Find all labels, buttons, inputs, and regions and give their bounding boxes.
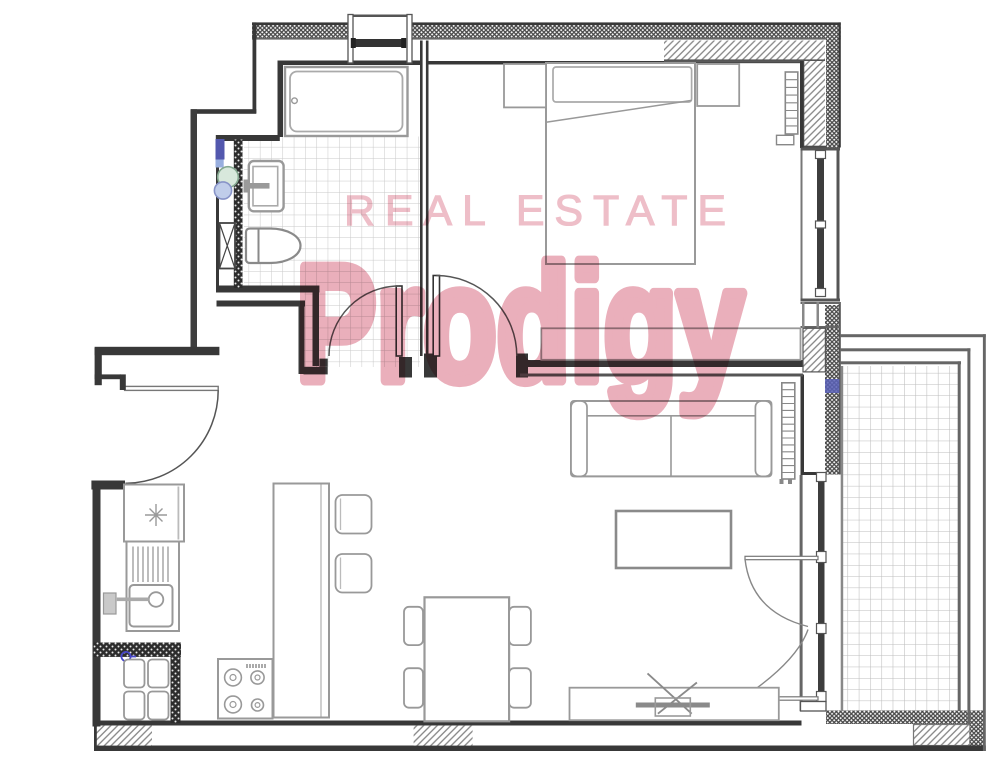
svg-text:Prodigy: Prodigy — [296, 232, 744, 415]
svg-text:REAL ESTATE: REAL ESTATE — [344, 187, 726, 235]
